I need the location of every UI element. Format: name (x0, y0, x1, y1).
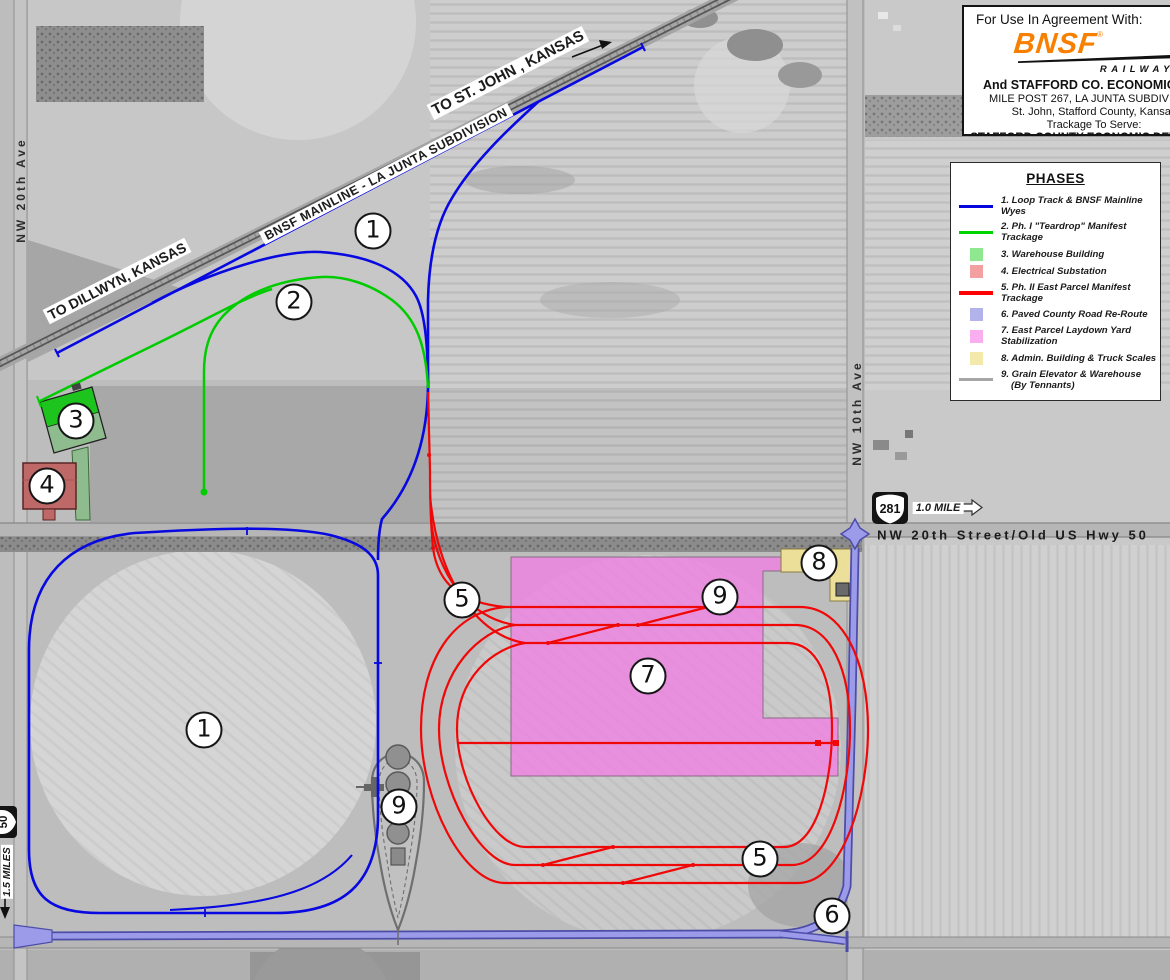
line-swatch (959, 231, 993, 234)
title-block-header: For Use In Agreement With: (964, 12, 1170, 27)
map-canvas: 281 50 TO ST. JOHN , KANSAS TO DILLWYN, … (0, 0, 1170, 980)
title-line-location: St. John, Stafford County, Kansas (964, 106, 1170, 118)
highway-shield-50: 50 (0, 806, 17, 838)
phase-marker-1: 1 (186, 712, 223, 749)
phase-marker-1: 1 (355, 213, 392, 250)
legend-item: 6. Paved County Road Re-Route (951, 306, 1160, 323)
square-swatch (970, 265, 983, 278)
bnsf-logo: BNSF® RAILWAY (1014, 30, 1170, 75)
label-nw-20th-ave: NW 20th Ave (14, 137, 28, 242)
legend-item: 1. Loop Track & BNSF Mainline Wyes (951, 193, 1160, 219)
title-block: For Use In Agreement With: BNSF® RAILWAY… (962, 5, 1170, 136)
aerial-map: 281 50 (0, 0, 1170, 980)
title-line-county: STAFFORD COUNTY ECONOMIC DEVELOPM (964, 132, 1170, 136)
label-1-5-miles: 1.5 MILES (1, 845, 13, 899)
legend-item: 8. Admin. Building & Truck Scales (951, 350, 1160, 367)
square-swatch (970, 330, 983, 343)
title-line-milepost: MILE POST 267, LA JUNTA SUBDIVISION (964, 93, 1170, 105)
label-hwy-50: NW 20th Street/Old US Hwy 50 (877, 528, 1149, 543)
legend-box: PHASES 1. Loop Track & BNSF Mainline Wye… (950, 162, 1161, 401)
legend-item: 2. Ph. I "Teardrop" Manifest Trackage (951, 219, 1160, 245)
legend-item: 4. Electrical Substation (951, 263, 1160, 280)
label-1-0-mile: 1.0 MILE (913, 502, 964, 514)
svg-text:50: 50 (0, 816, 10, 829)
square-swatch (970, 248, 983, 261)
legend-item-label: 2. Ph. I "Teardrop" Manifest Trackage (1001, 221, 1160, 243)
line-swatch (959, 291, 993, 294)
phase-marker-5: 5 (742, 841, 779, 878)
title-line-agreement: And STAFFORD CO. ECONOMIC DEV (964, 78, 1170, 92)
line-swatch (959, 205, 993, 208)
bnsf-logo-railway: RAILWAY (1014, 64, 1170, 75)
line-swatch (959, 378, 993, 381)
legend-title: PHASES (951, 171, 1160, 186)
square-swatch (970, 308, 983, 321)
legend-item-label: 4. Electrical Substation (1001, 266, 1107, 277)
legend-item-label: 6. Paved County Road Re-Route (1001, 309, 1148, 320)
title-line-serve: Trackage To Serve: (964, 119, 1170, 131)
legend-item-label: 1. Loop Track & BNSF Mainline Wyes (1001, 195, 1160, 217)
legend-item: 5. Ph. II East Parcel Manifest Trackage (951, 280, 1160, 306)
svg-text:281: 281 (880, 502, 901, 516)
highway-shield-281: 281 (872, 492, 908, 524)
legend-item-label: 9. Grain Elevator & Warehouse(By Tennant… (1001, 369, 1141, 391)
phase-marker-7: 7 (630, 658, 667, 695)
phase-marker-9: 9 (381, 789, 418, 826)
phase-marker-3: 3 (58, 403, 95, 440)
legend-items: 1. Loop Track & BNSF Mainline Wyes2. Ph.… (951, 193, 1160, 393)
legend-item-label: 7. East Parcel Laydown Yard Stabilizatio… (1001, 325, 1160, 347)
phase-marker-5: 5 (444, 582, 481, 619)
phase-marker-4: 4 (29, 468, 66, 505)
legend-item: 7. East Parcel Laydown Yard Stabilizatio… (951, 323, 1160, 349)
bnsf-logo-text: BNSF (1013, 30, 1099, 58)
aerial-fields (0, 0, 1170, 980)
phase-marker-6: 6 (814, 898, 851, 935)
phase-marker-2: 2 (276, 284, 313, 321)
label-nw-10th-ave: NW 10th Ave (850, 360, 864, 465)
legend-item: 9. Grain Elevator & Warehouse(By Tennant… (951, 367, 1160, 393)
phase-marker-9: 9 (702, 579, 739, 616)
square-swatch (970, 352, 983, 365)
legend-item-label: 3. Warehouse Building (1001, 249, 1104, 260)
legend-item: 3. Warehouse Building (951, 246, 1160, 263)
legend-item-label: 8. Admin. Building & Truck Scales (1001, 353, 1156, 364)
legend-item-label: 5. Ph. II East Parcel Manifest Trackage (1001, 282, 1160, 304)
phase-marker-8: 8 (801, 545, 838, 582)
